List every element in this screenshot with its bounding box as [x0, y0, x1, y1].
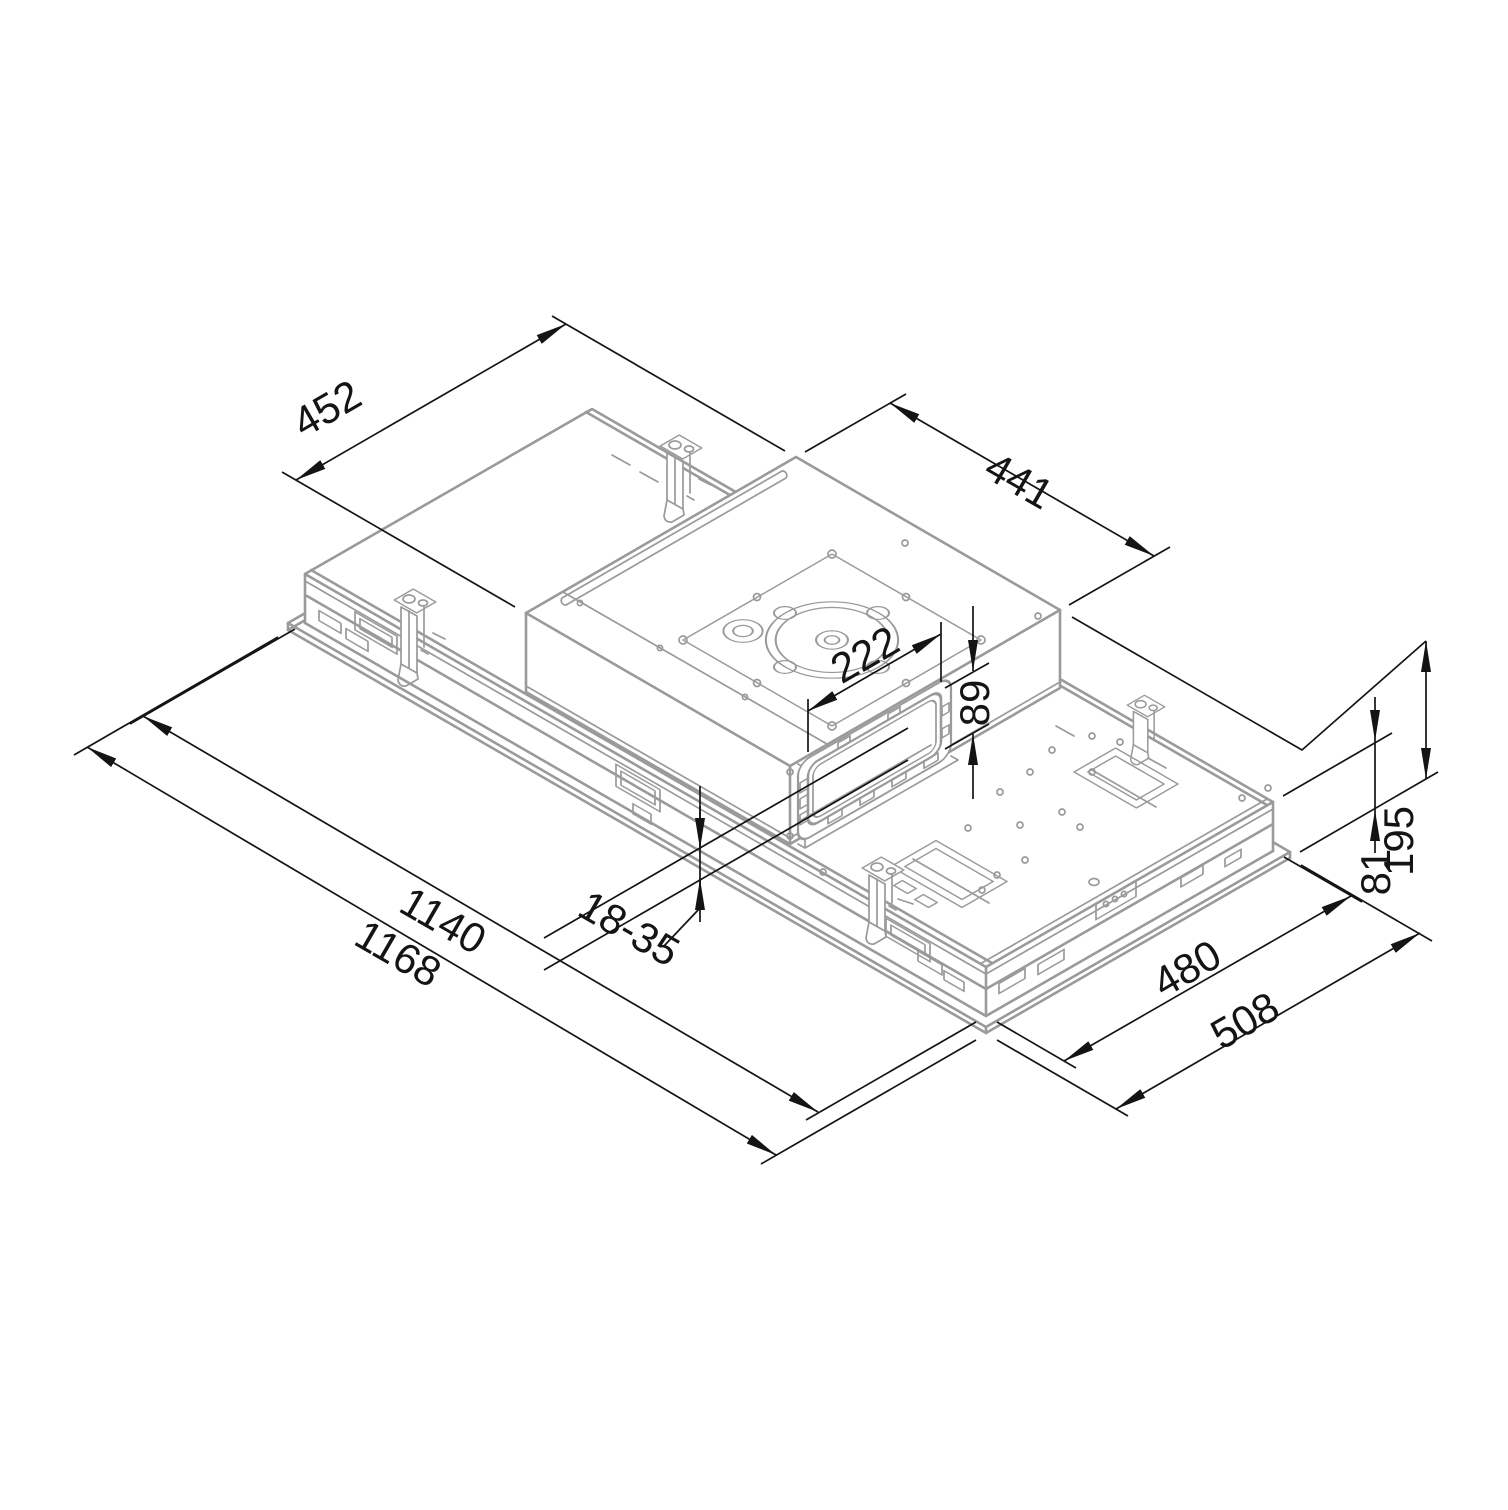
isometric-dimension-drawing: 452 441 222 89	[0, 0, 1508, 1510]
dim-label-clamp-range: 18-35	[571, 881, 688, 975]
dim-label-duct-outlet-height: 89	[951, 680, 998, 727]
dim-label-overall-depth: 508	[1203, 983, 1287, 1059]
dim-label-overall-height: 195	[1375, 806, 1422, 876]
dim-label-canopy-depth: 452	[285, 371, 369, 447]
technical-drawing-page: 452 441 222 89	[0, 0, 1508, 1510]
dim-label-canopy-length: 441	[977, 443, 1061, 519]
dim-label-recess-depth: 480	[1145, 931, 1229, 1007]
